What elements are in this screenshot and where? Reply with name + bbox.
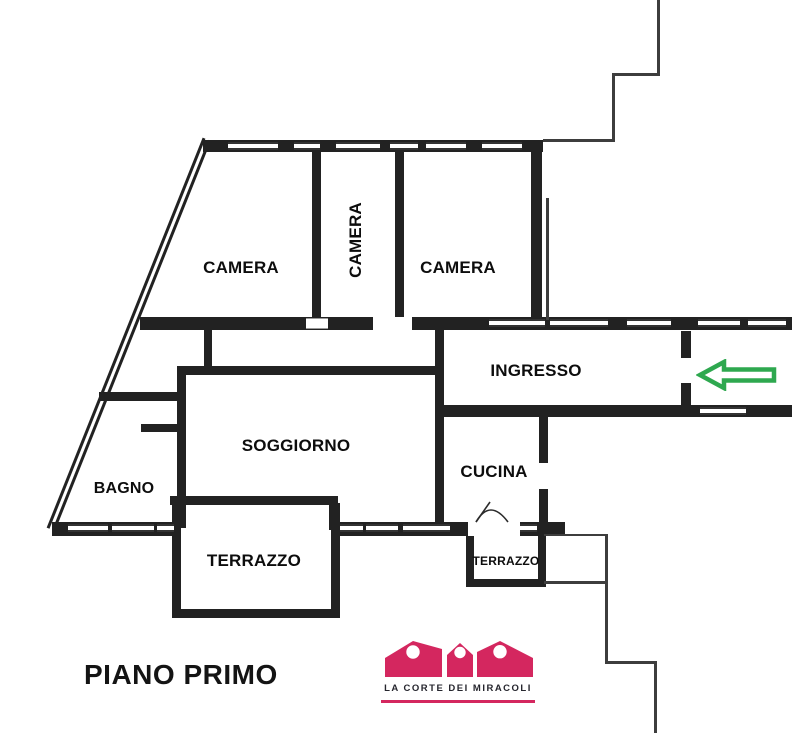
window xyxy=(698,319,740,327)
room-label-camera-2: CAMERA xyxy=(346,202,366,278)
wall xyxy=(141,424,177,432)
wall xyxy=(539,489,548,524)
wall xyxy=(466,579,546,587)
boundary-line xyxy=(657,0,660,76)
wall xyxy=(681,331,691,358)
entrance-arrow-icon xyxy=(696,359,778,391)
boundary-line xyxy=(543,139,614,142)
room-label-bagno: BAGNO xyxy=(94,480,155,498)
wall xyxy=(140,317,792,330)
wall xyxy=(681,383,691,409)
wall xyxy=(170,496,338,505)
wall xyxy=(539,413,548,463)
window xyxy=(228,142,278,150)
wall xyxy=(177,366,443,375)
room-label-cucina: CUCINA xyxy=(460,462,527,482)
room-label-terrazzo-grande: TERRAZZO xyxy=(207,551,301,571)
boundary-line xyxy=(544,534,608,536)
wall xyxy=(312,150,321,318)
window xyxy=(520,524,537,532)
three-houses-icon xyxy=(384,640,534,678)
window xyxy=(340,524,363,532)
window xyxy=(157,524,174,532)
window xyxy=(112,524,154,532)
door-swing-icon xyxy=(470,494,514,524)
floor-plan: CAMERA CAMERA CAMERA INGRESSO SOGGIORNO … xyxy=(0,0,792,733)
logo-underline xyxy=(381,700,535,703)
boundary-line xyxy=(612,73,660,76)
boundary-line xyxy=(546,198,549,320)
window xyxy=(748,319,786,327)
window xyxy=(336,142,380,150)
window xyxy=(403,524,450,532)
window xyxy=(550,319,608,327)
window xyxy=(489,319,545,327)
room-label-camera-3: CAMERA xyxy=(420,258,496,278)
wall xyxy=(435,330,444,526)
window xyxy=(700,407,746,415)
boundary-line xyxy=(654,661,657,733)
wall xyxy=(531,150,542,320)
room-label-terrazzo-piccolo: TERRAZZO xyxy=(473,554,540,568)
door-opening xyxy=(468,522,520,536)
window xyxy=(68,524,108,532)
wall xyxy=(331,503,340,618)
boundary-line xyxy=(605,534,608,664)
wall xyxy=(99,392,177,401)
wall xyxy=(172,503,181,618)
door-opening xyxy=(306,318,328,329)
wall xyxy=(204,330,212,370)
wall xyxy=(172,609,340,618)
boundary-line xyxy=(605,661,657,664)
window xyxy=(482,142,522,150)
door-opening xyxy=(373,317,412,330)
room-label-camera-1: CAMERA xyxy=(203,258,279,278)
room-label-ingresso: INGRESSO xyxy=(490,361,581,381)
boundary-line xyxy=(612,73,615,142)
wall xyxy=(395,150,404,318)
boundary-line xyxy=(544,581,608,584)
room-label-soggiorno: SOGGIORNO xyxy=(242,436,351,456)
wall-diagonal xyxy=(47,138,211,531)
logo-text: LA CORTE DEI MIRACOLI xyxy=(378,683,538,694)
floor-title: PIANO PRIMO xyxy=(84,659,278,691)
window xyxy=(366,524,398,532)
window xyxy=(294,142,320,150)
window xyxy=(627,319,671,327)
window xyxy=(426,142,466,150)
window xyxy=(390,142,418,150)
